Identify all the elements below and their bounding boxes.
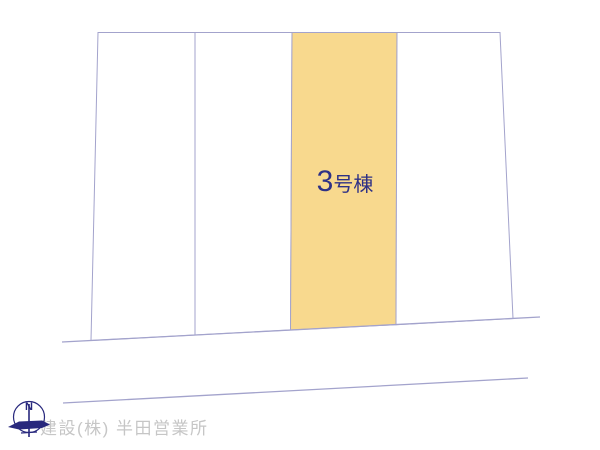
watermark-text: 建設(株) 半田営業所 (40, 419, 209, 438)
plot-2 (195, 33, 292, 336)
site-plan-svg: 3号棟 建設(株) 半田営業所 N (0, 0, 600, 450)
road-edge-lower (63, 378, 528, 403)
site-plan-diagram: 3号棟 建設(株) 半田営業所 N (0, 0, 600, 450)
plot-3-label-suffix: 号棟 (333, 173, 373, 196)
plot-3-label-number: 3 (317, 165, 334, 198)
plot-1 (91, 33, 195, 341)
plot-4 (396, 33, 513, 325)
compass-crossbar (21, 432, 37, 433)
compass-north-label: N (25, 401, 33, 413)
